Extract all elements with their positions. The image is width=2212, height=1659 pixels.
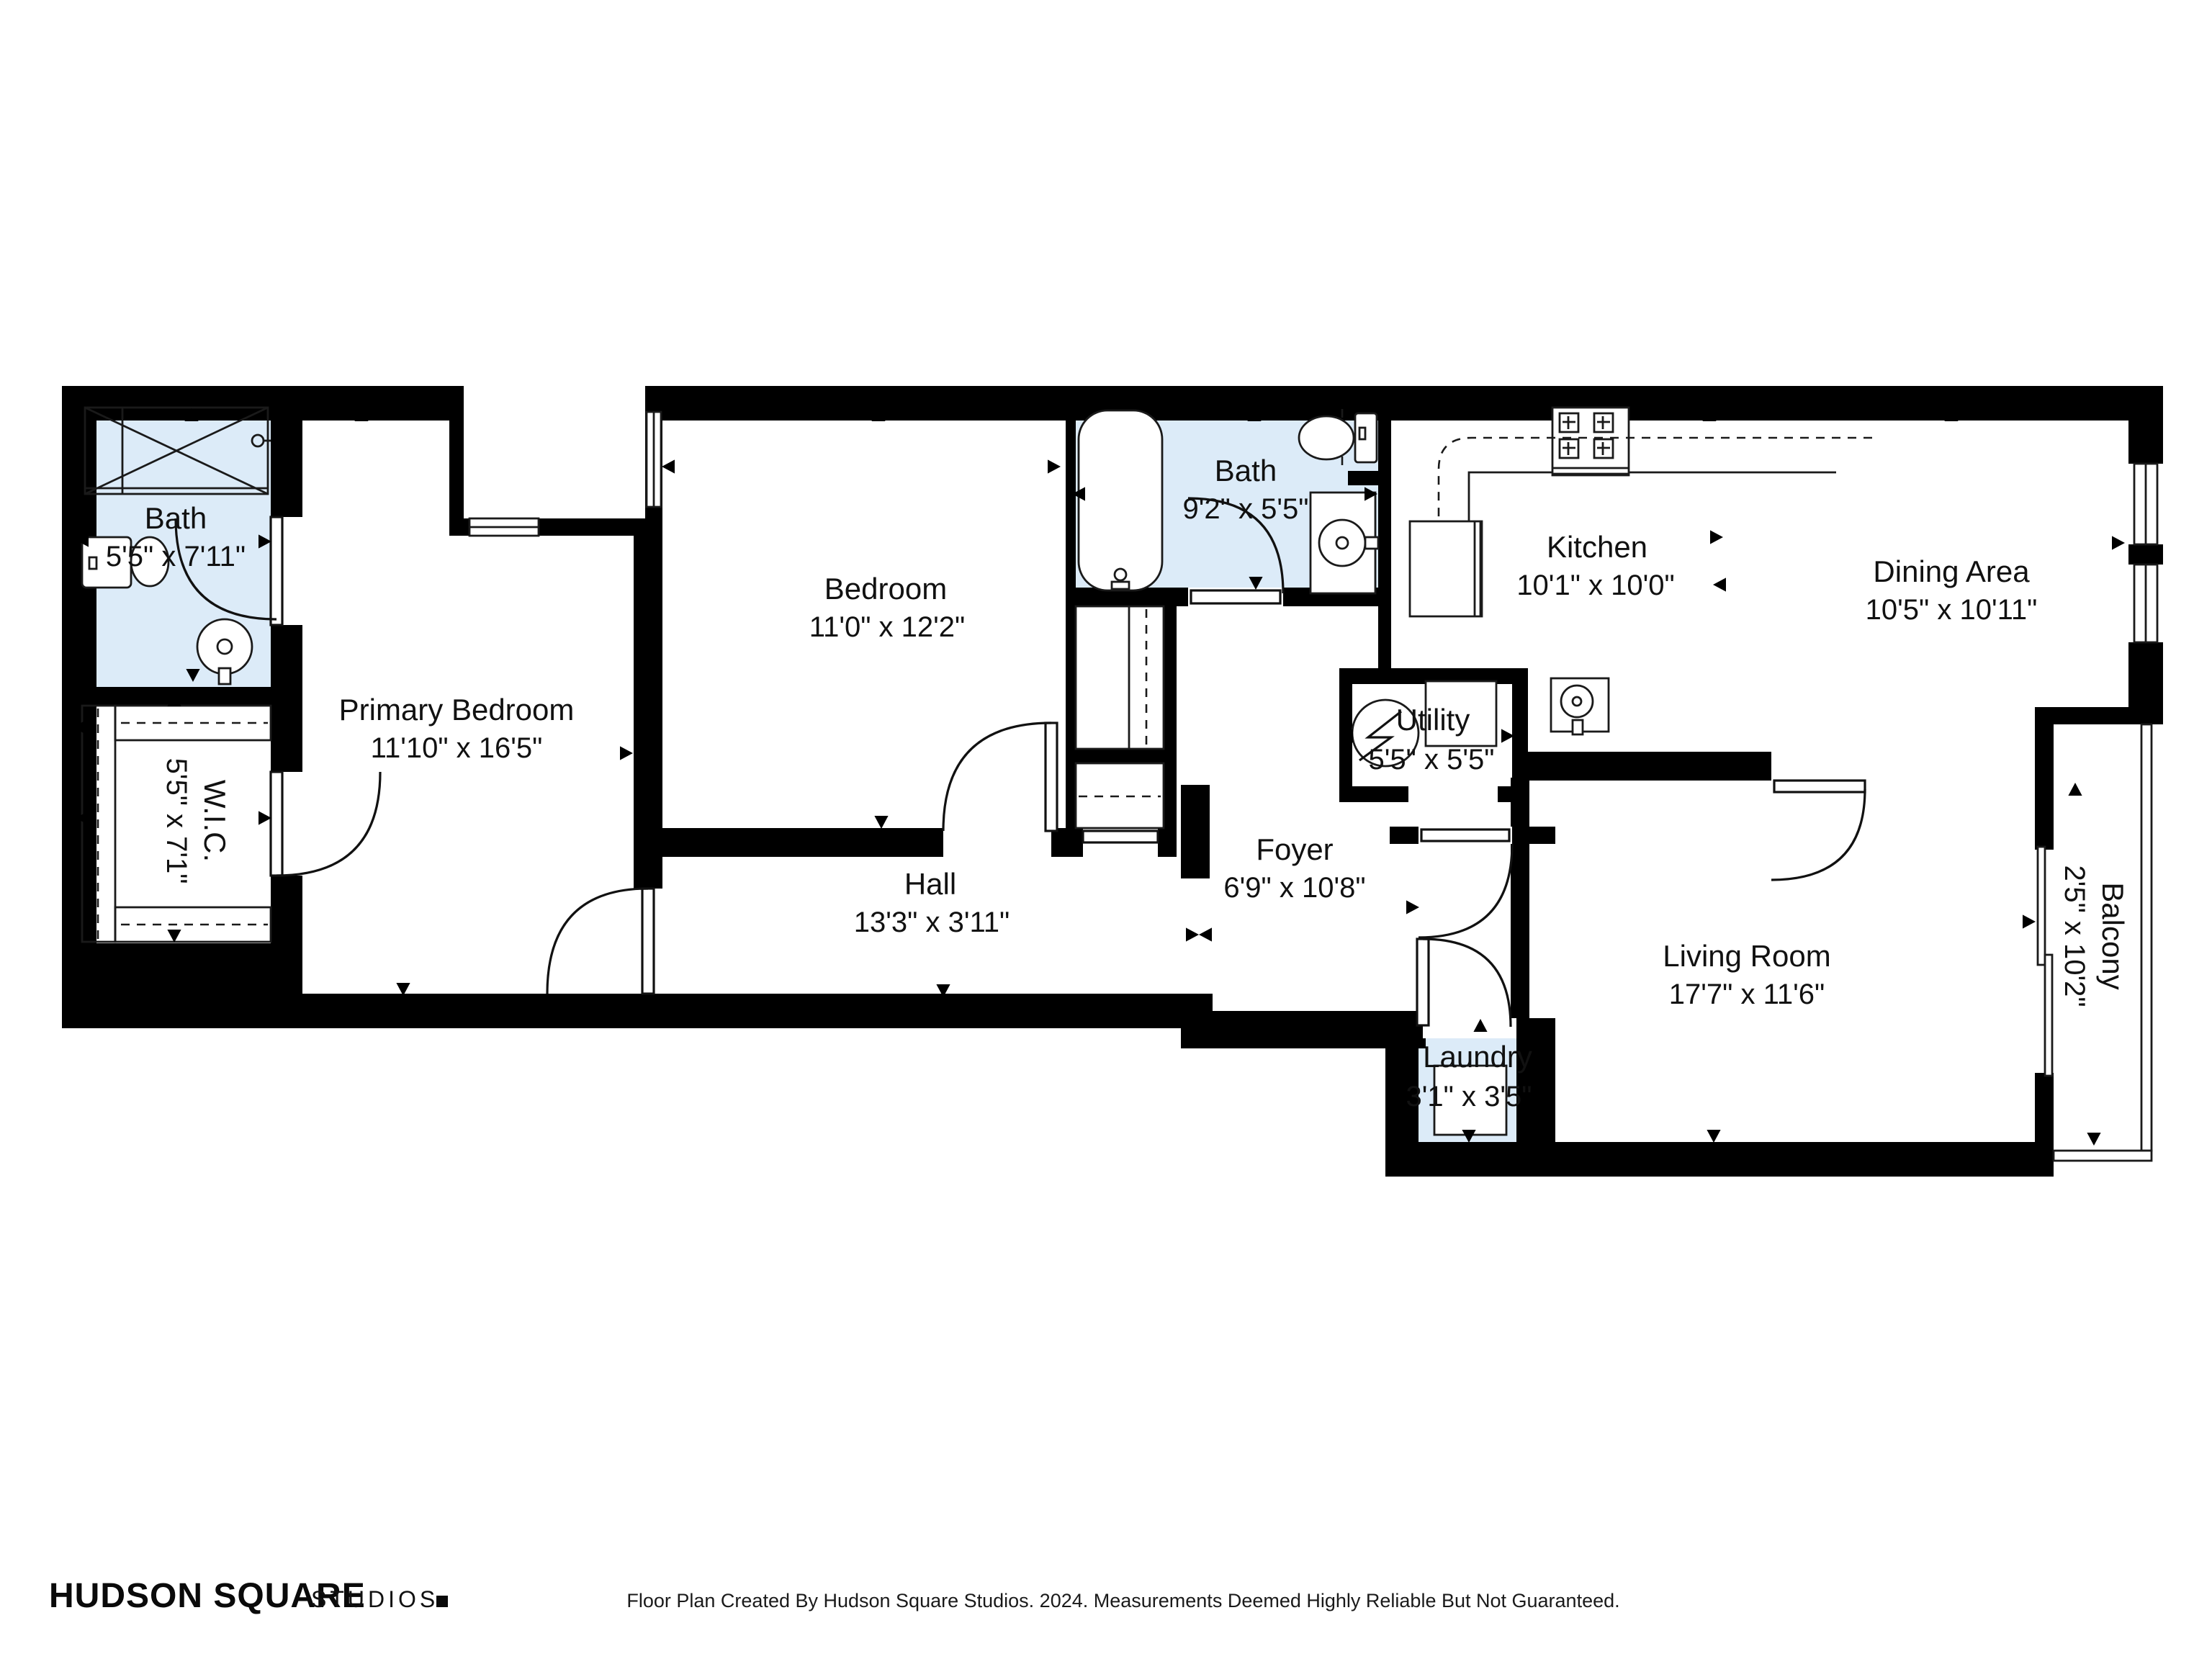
- wic-label-group: W.I.C. 5'5" x 7'1": [161, 758, 232, 884]
- bedroom-door: [943, 723, 1057, 831]
- brand-logo-secondary: STUDIOS: [311, 1586, 439, 1612]
- bath1-dims: 5'5" x 7'11": [106, 541, 246, 572]
- laundry-dims: 3'1" x 3'5": [1406, 1081, 1532, 1112]
- dining-window-upper: [2134, 464, 2157, 544]
- upper-cabinet-line: [1439, 438, 1872, 521]
- hall-label: Hall: [904, 867, 956, 901]
- bedroom-closet: [1076, 606, 1164, 828]
- primary-bedroom-label: Primary Bedroom: [339, 693, 575, 727]
- bedroom-dims: 11'0" x 12'2": [809, 611, 965, 643]
- hall-dims: 13'3" x 3'11": [854, 907, 1010, 938]
- bedroom-label: Bedroom: [824, 572, 947, 606]
- laundry-label: Laundry: [1423, 1040, 1532, 1074]
- footer: HUDSON SQUARE STUDIOS Floor Plan Created…: [49, 1577, 1620, 1615]
- closet-door: [1083, 831, 1158, 842]
- living-label: Living Room: [1663, 939, 1830, 973]
- kitchen-label: Kitchen: [1547, 530, 1647, 564]
- dining-label: Dining Area: [1873, 554, 2030, 588]
- balcony-label-group: Balcony 2'5" x 10'2": [2059, 865, 2130, 1007]
- primary-bedroom-dims: 11'10" x 16'5": [371, 732, 543, 764]
- fridge: [1410, 521, 1482, 616]
- footer-disclaimer: Floor Plan Created By Hudson Square Stud…: [626, 1590, 1619, 1611]
- bathtub: [1079, 410, 1162, 590]
- dining-window-lower: [2134, 565, 2157, 642]
- stove: [1552, 408, 1629, 475]
- sink-bath2: [1310, 493, 1378, 593]
- bath2-dims: 9'2" x 5'5": [1183, 493, 1309, 525]
- bedroom-window: [647, 412, 661, 507]
- balcony-dims: 2'5" x 10'2": [2059, 865, 2090, 1007]
- balcony-sliding-door: [2038, 847, 2052, 1076]
- kitchen-dims: 10'1" x 10'0": [1516, 570, 1674, 601]
- wic-label: W.I.C.: [198, 780, 232, 862]
- balcony-label: Balcony: [2096, 882, 2130, 989]
- laundry-door: [1417, 939, 1511, 1027]
- bath1-label: Bath: [145, 501, 207, 535]
- primary-bedroom-window: [469, 518, 539, 536]
- wic-dims: 5'5" x 7'1": [161, 758, 192, 884]
- kitchen-sink: [1551, 678, 1609, 734]
- living-dims: 17'7" x 11'6": [1669, 979, 1825, 1010]
- utility-dims: 5'5" x 5'5": [1369, 744, 1495, 775]
- kitchen-passage-door: [1771, 781, 1865, 880]
- dining-dims: 10'5" x 10'11": [1866, 594, 2038, 626]
- foyer-dims: 6'9" x 10'8": [1223, 872, 1365, 904]
- entry-door: [1419, 829, 1512, 938]
- utility-label: Utility: [1396, 703, 1470, 737]
- floor-plan: Bath 5'5" x 7'11" W.I.C. 5'5" x 7'1" Pri…: [0, 0, 2212, 1659]
- bath2-label: Bath: [1215, 454, 1277, 487]
- brand-logo-dot: [436, 1596, 448, 1607]
- foyer-label: Foyer: [1256, 832, 1333, 866]
